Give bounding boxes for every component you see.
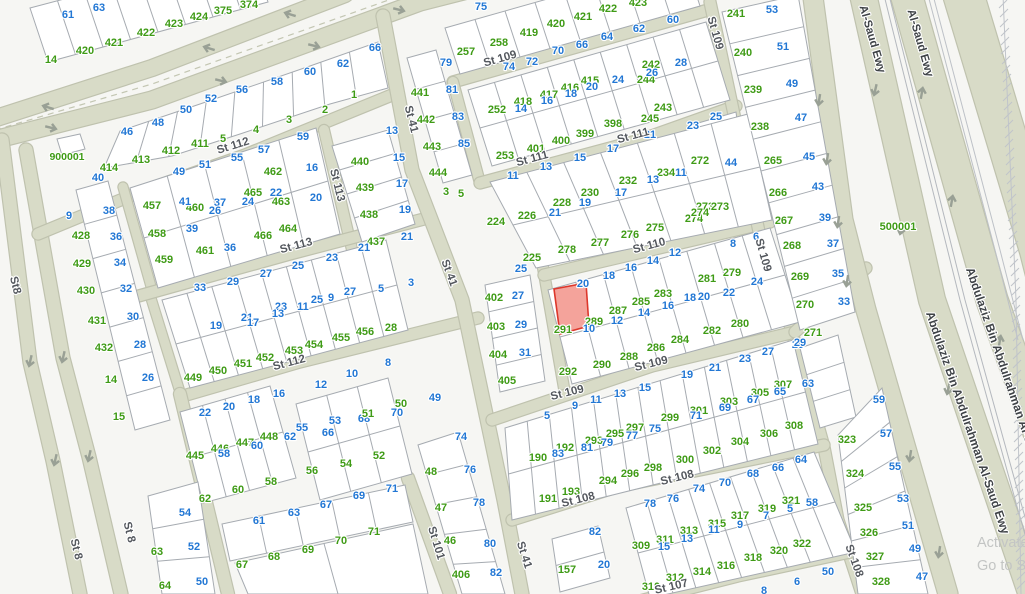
svg-text:20: 20 [586,81,598,93]
svg-text:15: 15 [658,541,670,553]
svg-text:12: 12 [611,315,623,327]
svg-text:14: 14 [647,255,660,267]
svg-text:25: 25 [311,294,323,306]
svg-text:60: 60 [304,66,316,78]
svg-text:60: 60 [232,484,244,496]
svg-text:79: 79 [601,437,613,449]
svg-text:275: 275 [646,222,664,234]
svg-text:3: 3 [408,277,414,289]
svg-text:442: 442 [417,114,435,126]
svg-text:2: 2 [322,104,328,116]
svg-text:306: 306 [760,428,778,440]
svg-text:20: 20 [223,401,235,413]
svg-text:25: 25 [515,263,527,275]
svg-text:26: 26 [209,205,221,217]
svg-text:431: 431 [88,315,106,327]
svg-text:21: 21 [709,362,721,374]
svg-text:440: 440 [351,156,369,168]
svg-text:83: 83 [552,448,564,460]
svg-text:77: 77 [626,430,638,442]
svg-text:421: 421 [105,37,123,49]
svg-text:20: 20 [598,559,610,571]
svg-text:9: 9 [572,400,578,412]
svg-text:52: 52 [205,93,217,105]
svg-text:36: 36 [224,242,236,254]
svg-text:82: 82 [490,567,502,579]
svg-text:325: 325 [854,502,872,514]
svg-text:79: 79 [440,57,452,69]
svg-text:406: 406 [452,569,470,581]
svg-text:296: 296 [621,468,639,480]
svg-text:27: 27 [762,346,774,358]
svg-text:55: 55 [296,422,308,434]
svg-text:52: 52 [373,450,385,462]
svg-text:83: 83 [452,111,464,123]
svg-text:13: 13 [647,174,659,186]
svg-text:9: 9 [328,292,334,304]
svg-text:41: 41 [179,196,191,208]
svg-text:277: 277 [591,237,609,249]
svg-text:49: 49 [429,392,441,404]
svg-text:23: 23 [326,252,338,264]
svg-text:51: 51 [362,408,374,420]
svg-text:3: 3 [443,186,449,198]
svg-text:290: 290 [593,359,611,371]
svg-text:36: 36 [110,231,122,243]
svg-text:32: 32 [120,283,132,295]
svg-text:68: 68 [747,468,759,480]
svg-text:76: 76 [667,493,679,505]
svg-text:63: 63 [93,2,105,14]
svg-text:71: 71 [690,410,702,422]
svg-text:70: 70 [552,45,564,57]
svg-text:309: 309 [632,540,650,552]
svg-text:13: 13 [272,308,284,320]
svg-text:267: 267 [775,215,793,227]
svg-text:16: 16 [306,162,318,174]
svg-text:16: 16 [273,388,285,400]
svg-text:327: 327 [866,551,884,563]
svg-text:276: 276 [621,229,639,241]
svg-text:31: 31 [519,347,531,359]
svg-text:54: 54 [179,507,192,519]
svg-text:11: 11 [507,170,519,182]
svg-text:59: 59 [873,394,885,406]
svg-text:234: 234 [657,167,676,179]
svg-text:270: 270 [796,299,814,311]
svg-text:405: 405 [498,375,516,387]
svg-text:47: 47 [435,502,447,514]
svg-text:464: 464 [279,223,298,235]
svg-text:28: 28 [675,57,687,69]
svg-text:274: 274 [691,207,710,219]
svg-text:399: 399 [576,128,594,140]
svg-text:24: 24 [612,74,625,86]
svg-text:34: 34 [114,257,127,269]
svg-text:33: 33 [194,282,206,294]
svg-text:18: 18 [565,88,577,100]
svg-text:269: 269 [791,271,809,283]
svg-text:43: 43 [812,181,824,193]
svg-text:404: 404 [489,349,508,361]
svg-text:273: 273 [711,201,729,213]
svg-text:190: 190 [529,452,547,464]
svg-text:14: 14 [515,103,528,115]
svg-text:37: 37 [827,238,839,250]
svg-text:241: 241 [727,8,745,20]
svg-text:50: 50 [180,104,192,116]
svg-text:71: 71 [368,526,380,538]
svg-text:66: 66 [369,42,381,54]
svg-text:157: 157 [558,564,576,576]
svg-text:403: 403 [487,321,505,333]
svg-text:308: 308 [785,420,803,432]
svg-text:252: 252 [488,104,506,116]
svg-text:245: 245 [641,113,659,125]
svg-text:400: 400 [552,135,570,147]
svg-text:49: 49 [909,543,921,555]
svg-text:35: 35 [832,268,844,280]
svg-text:85: 85 [458,138,470,150]
svg-text:6: 6 [794,576,800,588]
svg-text:67: 67 [747,394,759,406]
svg-text:25: 25 [292,260,304,272]
svg-text:439: 439 [356,182,374,194]
svg-text:328: 328 [872,576,890,588]
svg-text:50: 50 [395,398,407,410]
svg-text:9: 9 [737,519,743,531]
svg-text:279: 279 [723,267,741,279]
svg-text:54: 54 [340,458,353,470]
svg-text:22: 22 [723,287,735,299]
svg-text:20: 20 [577,278,589,290]
svg-text:22: 22 [270,187,282,199]
svg-text:441: 441 [411,87,429,99]
svg-text:318: 318 [744,552,762,564]
svg-text:291: 291 [554,324,572,336]
svg-text:280: 280 [731,318,749,330]
svg-text:66: 66 [576,39,588,51]
svg-text:402: 402 [485,292,503,304]
svg-text:11: 11 [675,167,687,179]
svg-text:18: 18 [684,292,696,304]
svg-text:50: 50 [196,576,208,588]
svg-text:19: 19 [681,369,693,381]
svg-text:422: 422 [137,27,155,39]
svg-text:29: 29 [515,319,527,331]
svg-text:239: 239 [744,84,762,96]
svg-text:444: 444 [429,167,448,179]
svg-text:238: 238 [751,121,769,133]
svg-text:40: 40 [92,172,104,184]
svg-text:450: 450 [209,365,227,377]
svg-text:398: 398 [604,118,622,130]
svg-text:11: 11 [590,394,602,406]
svg-text:14: 14 [105,374,118,386]
svg-text:16: 16 [625,262,637,274]
svg-text:326: 326 [860,527,878,539]
svg-text:421: 421 [574,11,592,23]
svg-text:411: 411 [191,138,209,150]
svg-text:282: 282 [703,325,721,337]
svg-text:78: 78 [473,497,485,509]
svg-text:64: 64 [159,580,172,592]
svg-text:58: 58 [806,497,818,509]
svg-text:419: 419 [520,27,538,39]
svg-text:8: 8 [761,585,767,594]
svg-text:71: 71 [386,483,398,495]
svg-text:8: 8 [385,357,391,369]
svg-text:62: 62 [199,493,211,505]
svg-text:420: 420 [547,18,565,30]
svg-text:445: 445 [186,450,204,462]
svg-text:69: 69 [302,544,314,556]
svg-text:13: 13 [681,533,693,545]
svg-text:375: 375 [214,5,232,17]
svg-text:23: 23 [739,353,751,365]
svg-text:21: 21 [401,231,413,243]
svg-text:322: 322 [793,538,811,550]
svg-text:10: 10 [346,368,358,380]
svg-text:75: 75 [475,1,487,13]
svg-text:323: 323 [838,434,856,446]
svg-text:66: 66 [772,462,784,474]
svg-text:191: 191 [539,493,557,505]
svg-text:62: 62 [337,58,349,70]
svg-text:10: 10 [583,323,595,335]
svg-text:253: 253 [496,150,514,162]
svg-text:60: 60 [251,440,263,452]
svg-text:17: 17 [615,187,627,199]
svg-text:429: 429 [73,258,91,270]
svg-text:424: 424 [190,11,209,23]
svg-text:81: 81 [446,84,458,96]
svg-text:13: 13 [540,161,552,173]
svg-text:292: 292 [559,366,577,378]
svg-text:27: 27 [260,268,272,280]
svg-text:72: 72 [526,56,538,68]
svg-text:27: 27 [344,286,356,298]
svg-text:298: 298 [644,462,662,474]
svg-text:500001: 500001 [880,221,917,233]
svg-text:428: 428 [72,230,90,242]
svg-text:58: 58 [218,448,230,460]
svg-text:423: 423 [165,18,183,30]
svg-text:449: 449 [184,372,202,384]
svg-text:19: 19 [210,320,222,332]
svg-text:47: 47 [795,112,807,124]
svg-text:80: 80 [484,538,496,550]
svg-text:26: 26 [142,372,154,384]
svg-text:1: 1 [351,89,357,101]
svg-text:53: 53 [897,493,909,505]
svg-text:458: 458 [148,228,166,240]
svg-text:27: 27 [512,290,524,302]
svg-text:268: 268 [783,240,801,252]
svg-text:55: 55 [231,152,243,164]
svg-text:5: 5 [378,283,384,295]
svg-text:420: 420 [76,45,94,57]
svg-text:44: 44 [725,157,738,169]
svg-text:30: 30 [127,311,139,323]
svg-text:454: 454 [305,339,324,351]
svg-text:284: 284 [671,334,690,346]
svg-text:430: 430 [77,285,95,297]
svg-text:74: 74 [693,483,706,495]
svg-text:374: 374 [240,0,259,11]
svg-text:14: 14 [45,54,58,66]
svg-text:46: 46 [121,126,133,138]
svg-text:286: 286 [647,342,665,354]
svg-text:457: 457 [143,200,161,212]
svg-text:60: 60 [667,14,679,26]
svg-text:45: 45 [803,151,815,163]
svg-text:55: 55 [889,461,901,473]
svg-text:299: 299 [661,412,679,424]
svg-text:82: 82 [589,526,601,538]
svg-text:64: 64 [601,31,614,43]
svg-text:61: 61 [62,9,74,21]
svg-text:64: 64 [795,454,808,466]
svg-text:900001: 900001 [49,151,84,163]
svg-text:58: 58 [271,76,283,88]
svg-text:Activate Windows: Activate Windows [977,535,1025,551]
svg-text:25: 25 [710,111,722,123]
svg-text:22: 22 [199,407,211,419]
svg-text:23: 23 [687,120,699,132]
svg-text:271: 271 [804,327,822,339]
svg-text:24: 24 [751,276,764,288]
svg-text:29: 29 [794,337,806,349]
svg-text:12: 12 [669,247,681,259]
svg-text:12: 12 [315,379,327,391]
svg-text:265: 265 [764,155,782,167]
svg-text:24: 24 [242,196,255,208]
svg-text:432: 432 [95,342,113,354]
svg-text:46: 46 [444,535,456,547]
svg-text:57: 57 [880,428,892,440]
svg-text:4: 4 [253,124,260,136]
svg-text:75: 75 [649,423,661,435]
svg-text:443: 443 [423,141,441,153]
svg-text:11: 11 [297,301,309,313]
svg-text:47: 47 [916,571,928,583]
svg-text:281: 281 [698,273,716,285]
svg-text:49: 49 [786,78,798,90]
svg-text:58: 58 [265,476,277,488]
svg-text:15: 15 [393,152,405,164]
svg-text:53: 53 [329,415,341,427]
svg-text:17: 17 [247,317,259,329]
svg-text:314: 314 [693,566,712,578]
svg-text:20: 20 [310,192,322,204]
svg-text:224: 224 [487,216,506,228]
svg-text:74: 74 [455,431,468,443]
svg-text:438: 438 [360,209,378,221]
svg-text:28: 28 [385,322,397,334]
svg-text:48: 48 [425,466,437,478]
svg-text:413: 413 [132,154,150,166]
svg-text:63: 63 [151,546,163,558]
svg-text:70: 70 [719,477,731,489]
svg-text:39: 39 [186,223,198,235]
svg-text:459: 459 [155,254,173,266]
svg-text:21: 21 [358,242,370,254]
svg-text:20: 20 [698,291,710,303]
svg-text:257: 257 [457,46,475,58]
svg-text:50: 50 [822,566,834,578]
svg-text:451: 451 [234,358,252,370]
svg-text:316: 316 [717,560,735,572]
svg-text:17: 17 [607,143,619,155]
svg-text:9: 9 [66,210,72,222]
svg-text:65: 65 [774,386,786,398]
svg-text:76: 76 [464,464,476,476]
svg-text:17: 17 [396,178,408,190]
svg-text:67: 67 [320,499,332,511]
svg-text:226: 226 [518,210,536,222]
svg-text:300: 300 [676,454,694,466]
svg-text:455: 455 [332,332,350,344]
svg-text:423: 423 [629,0,647,9]
svg-text:456: 456 [356,326,374,338]
svg-text:304: 304 [731,436,750,448]
svg-text:56: 56 [306,465,318,477]
svg-text:78: 78 [644,498,656,510]
svg-text:39: 39 [819,212,831,224]
svg-text:51: 51 [199,159,211,171]
svg-text:38: 38 [103,205,115,217]
svg-text:28: 28 [134,339,146,351]
svg-text:272: 272 [691,155,709,167]
svg-text:462: 462 [264,166,282,178]
svg-text:67: 67 [236,559,248,571]
svg-text:19: 19 [399,204,411,216]
svg-text:21: 21 [549,207,561,219]
svg-text:49: 49 [173,166,185,178]
svg-text:18: 18 [603,270,615,282]
svg-text:62: 62 [633,23,645,35]
svg-text:266: 266 [769,187,787,199]
svg-text:422: 422 [599,3,617,15]
svg-text:33: 33 [838,296,850,308]
svg-text:15: 15 [574,152,586,164]
svg-text:51: 51 [777,41,789,53]
svg-text:232: 232 [619,175,637,187]
svg-text:15: 15 [113,411,125,423]
svg-text:26: 26 [646,67,658,79]
svg-text:69: 69 [353,490,365,502]
svg-text:63: 63 [288,507,300,519]
svg-text:324: 324 [846,468,865,480]
svg-text:8: 8 [730,238,736,250]
svg-text:70: 70 [335,535,347,547]
svg-text:62: 62 [284,431,296,443]
svg-text:56: 56 [236,84,248,96]
svg-text:16: 16 [662,300,674,312]
svg-text:5: 5 [458,188,464,200]
svg-text:19: 19 [579,197,591,209]
svg-text:320: 320 [770,545,788,557]
svg-text:3: 3 [286,114,292,126]
svg-text:466: 466 [254,230,272,242]
svg-text:283: 283 [654,288,672,300]
svg-text:57: 57 [258,144,270,156]
svg-text:29: 29 [227,276,239,288]
svg-text:66: 66 [322,427,334,439]
svg-text:15: 15 [639,382,651,394]
svg-text:53: 53 [766,4,778,16]
